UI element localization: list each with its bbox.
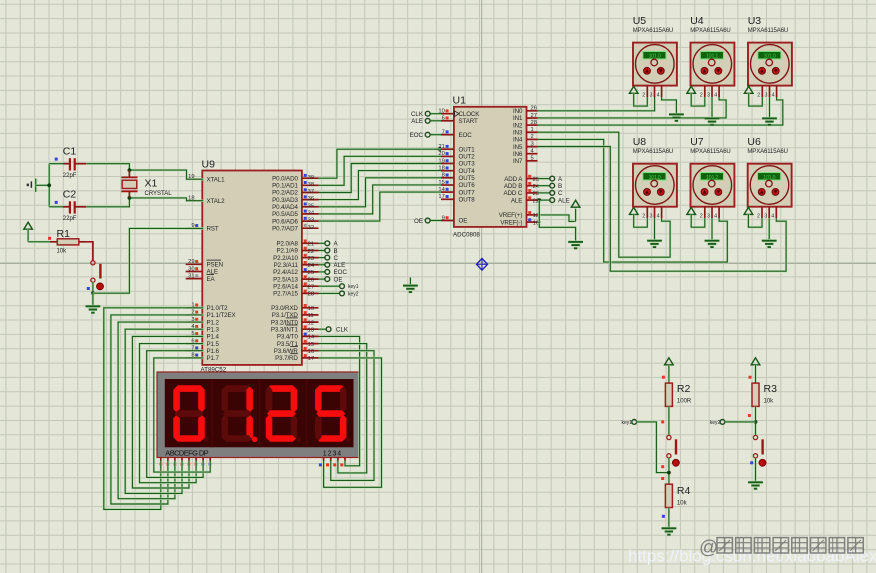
svg-text:5: 5: [531, 156, 534, 162]
svg-text:START: START: [459, 118, 479, 125]
svg-text:IN3: IN3: [513, 129, 523, 136]
svg-text:6: 6: [442, 116, 445, 122]
svg-text:17: 17: [308, 356, 314, 362]
svg-text:10k: 10k: [677, 500, 688, 506]
svg-text:OUT3: OUT3: [459, 161, 476, 168]
svg-text:8: 8: [442, 173, 445, 179]
svg-text:key2: key2: [348, 291, 359, 297]
svg-text:IN4: IN4: [513, 137, 523, 144]
svg-text:36: 36: [308, 196, 314, 202]
svg-text:P1.2: P1.2: [207, 319, 220, 326]
svg-text:P3.7/RD: P3.7/RD: [275, 355, 298, 362]
svg-text:4: 4: [657, 93, 660, 99]
svg-text:27: 27: [531, 113, 537, 119]
svg-text:R3: R3: [764, 383, 778, 395]
svg-text:28: 28: [531, 120, 537, 126]
svg-text:C2: C2: [63, 188, 77, 200]
svg-text:2: 2: [642, 214, 645, 220]
svg-text:IN6: IN6: [513, 151, 523, 158]
svg-text:U7: U7: [690, 136, 704, 148]
svg-text:VREF(-): VREF(-): [500, 219, 522, 226]
svg-text:R4: R4: [677, 485, 691, 497]
svg-text:OUT2: OUT2: [459, 154, 476, 161]
svg-text:MPXA6115A6U: MPXA6115A6U: [633, 28, 673, 34]
svg-text:CLK: CLK: [336, 327, 349, 334]
svg-text:OE: OE: [414, 218, 423, 225]
svg-text:15: 15: [308, 342, 314, 348]
svg-text:2: 2: [757, 93, 760, 99]
svg-text:3: 3: [707, 214, 710, 220]
svg-text:P1.3: P1.3: [207, 326, 220, 333]
svg-text:ADD B: ADD B: [504, 183, 522, 190]
svg-text:22pF: 22pF: [63, 216, 77, 222]
svg-text:P0.7/AD7: P0.7/AD7: [272, 225, 298, 232]
svg-text:P0.3/AD3: P0.3/AD3: [272, 197, 298, 204]
svg-text:25: 25: [308, 270, 314, 276]
svg-text:4: 4: [714, 93, 717, 99]
svg-text:P2.6/A14: P2.6/A14: [273, 283, 298, 290]
svg-text:B: B: [334, 248, 338, 255]
svg-text:32: 32: [308, 225, 314, 231]
svg-text:22pF: 22pF: [63, 173, 77, 179]
svg-text:21: 21: [308, 242, 314, 248]
svg-text:12: 12: [308, 320, 314, 326]
svg-text:P0.2/AD2: P0.2/AD2: [272, 190, 298, 197]
svg-text:P2.7/A15: P2.7/A15: [273, 291, 298, 298]
svg-text:U1: U1: [453, 95, 467, 107]
svg-text:3: 3: [650, 93, 653, 99]
svg-text:OUT8: OUT8: [459, 197, 476, 204]
svg-text:U8: U8: [633, 136, 647, 148]
svg-text:U5: U5: [633, 15, 647, 27]
svg-text:17: 17: [438, 194, 444, 200]
svg-text:OUT1: OUT1: [459, 146, 476, 153]
svg-text:U9: U9: [202, 159, 216, 171]
svg-text:11: 11: [308, 313, 314, 319]
svg-text:IN2: IN2: [513, 122, 523, 129]
svg-text:4: 4: [772, 93, 775, 99]
svg-text:CRYSTAL: CRYSTAL: [145, 191, 173, 197]
svg-text:3: 3: [707, 93, 710, 99]
svg-text:2: 2: [700, 93, 703, 99]
svg-text:ADD A: ADD A: [504, 176, 523, 183]
svg-text:P2.5/A13: P2.5/A13: [273, 276, 298, 283]
svg-text:P2.2/A10: P2.2/A10: [273, 255, 298, 262]
svg-text:P1.5: P1.5: [207, 341, 220, 348]
svg-text:ALE: ALE: [558, 197, 570, 204]
svg-text:OUT4: OUT4: [459, 168, 476, 175]
svg-text:C: C: [558, 190, 563, 197]
svg-text:ADD C: ADD C: [504, 190, 523, 197]
svg-text:2: 2: [531, 134, 534, 140]
svg-text:https://blog.csdn.net/xiaobabA: https://blog.csdn.net/xiaobabAlex: [628, 547, 876, 566]
svg-text:22: 22: [308, 249, 314, 255]
svg-text:U4: U4: [690, 15, 704, 27]
svg-text:ALE: ALE: [511, 197, 522, 204]
svg-text:4: 4: [714, 214, 717, 220]
svg-text:16: 16: [308, 349, 314, 355]
svg-text:P0.1/AD1: P0.1/AD1: [272, 183, 298, 190]
svg-text:2: 2: [700, 214, 703, 220]
svg-text:27: 27: [308, 285, 314, 291]
svg-text:P2.4/A12: P2.4/A12: [273, 269, 298, 276]
svg-text:EOC: EOC: [459, 132, 473, 139]
svg-text:3: 3: [531, 141, 534, 147]
svg-text:RST: RST: [207, 226, 219, 233]
svg-text:3: 3: [765, 93, 768, 99]
svg-text:P1.4: P1.4: [207, 334, 220, 341]
svg-text:C: C: [334, 255, 339, 262]
svg-text:IN5: IN5: [513, 144, 523, 151]
svg-text:OE: OE: [334, 276, 343, 283]
svg-text:MPXA6115A6U: MPXA6115A6U: [690, 28, 730, 34]
svg-text:P2.0/A8: P2.0/A8: [276, 241, 298, 248]
svg-text:C1: C1: [63, 145, 77, 157]
svg-text:P0.0/AD0: P0.0/AD0: [272, 175, 298, 182]
svg-text:37: 37: [308, 189, 314, 195]
svg-text:23: 23: [308, 256, 314, 262]
svg-text:10k: 10k: [57, 248, 68, 254]
svg-text:P3.3/INT1: P3.3/INT1: [271, 326, 299, 333]
svg-text:4: 4: [771, 214, 774, 220]
svg-text:U3: U3: [748, 15, 762, 27]
svg-text:VREF(+): VREF(+): [499, 212, 523, 219]
svg-text:EA: EA: [207, 276, 216, 283]
svg-text:34: 34: [308, 211, 315, 217]
svg-text:P0.5/AD5: P0.5/AD5: [272, 211, 298, 218]
svg-text:28: 28: [308, 292, 314, 298]
svg-text:PSEN: PSEN: [207, 262, 223, 269]
svg-text:MPXA6115A6U: MPXA6115A6U: [690, 149, 730, 155]
svg-text:EOC: EOC: [334, 269, 348, 276]
svg-text:P0.6/AD6: P0.6/AD6: [272, 218, 298, 225]
svg-text:P2.3/A11: P2.3/A11: [274, 262, 299, 269]
svg-text:26: 26: [308, 277, 314, 283]
svg-text:38: 38: [308, 182, 314, 188]
svg-text:ABCDEFG DP: ABCDEFG DP: [165, 449, 208, 458]
svg-text:OUT7: OUT7: [459, 189, 476, 196]
svg-text:3: 3: [764, 214, 767, 220]
svg-text:R1: R1: [57, 228, 71, 240]
svg-text:IN1: IN1: [513, 115, 523, 122]
svg-text:B: B: [558, 183, 562, 190]
svg-text:P2.1/A9: P2.1/A9: [276, 248, 298, 255]
svg-text:IN0: IN0: [513, 108, 523, 115]
svg-text:MPXA6115A6U: MPXA6115A6U: [748, 28, 788, 34]
svg-text:2: 2: [757, 214, 760, 220]
svg-text:24: 24: [308, 263, 315, 269]
svg-text:key2: key2: [710, 420, 721, 426]
svg-text:@: @: [699, 538, 718, 559]
svg-text:P1.0/T2: P1.0/T2: [207, 305, 229, 312]
svg-text:U6: U6: [747, 136, 761, 148]
svg-text:3: 3: [650, 214, 653, 220]
svg-text:ALE: ALE: [334, 262, 346, 269]
svg-text:OUT5: OUT5: [459, 175, 476, 182]
svg-text:2: 2: [642, 93, 645, 99]
svg-text:R2: R2: [677, 383, 691, 395]
svg-text:39: 39: [308, 175, 314, 181]
svg-text:33: 33: [308, 218, 314, 224]
svg-text:CLK: CLK: [411, 111, 424, 118]
svg-text:29: 29: [188, 259, 194, 265]
svg-text:7: 7: [442, 130, 445, 136]
svg-text:XTAL1: XTAL1: [207, 176, 226, 183]
svg-text:ADC0808: ADC0808: [453, 232, 480, 239]
svg-text:1 2 3 4: 1 2 3 4: [323, 451, 342, 458]
svg-text:10: 10: [308, 306, 314, 312]
svg-text:IN7: IN7: [513, 158, 523, 165]
svg-text:P0.4/AD4: P0.4/AD4: [272, 204, 298, 211]
svg-text:14: 14: [308, 335, 315, 341]
svg-text:P1.6: P1.6: [207, 348, 220, 355]
svg-text:26: 26: [531, 106, 537, 112]
svg-text:P3.4/T0: P3.4/T0: [277, 334, 299, 341]
svg-text:P1.1/T2EX: P1.1/T2EX: [207, 312, 236, 319]
svg-text:key1: key1: [348, 284, 359, 290]
svg-text:30: 30: [188, 266, 194, 272]
svg-text:35: 35: [308, 203, 314, 209]
svg-text:P1.7: P1.7: [207, 355, 220, 362]
svg-text:MPXA6115A6U: MPXA6115A6U: [747, 149, 787, 155]
svg-text:OUT6: OUT6: [459, 182, 476, 189]
svg-text:MPXA6115A6U: MPXA6115A6U: [633, 149, 673, 155]
svg-text:P3.0/RXD: P3.0/RXD: [271, 305, 298, 312]
svg-text:4: 4: [657, 214, 660, 220]
svg-text:1: 1: [531, 127, 534, 133]
svg-text:OE: OE: [459, 218, 468, 225]
svg-text:key1: key1: [621, 420, 632, 426]
svg-text:10k: 10k: [764, 398, 775, 404]
svg-text:13: 13: [308, 328, 314, 334]
svg-text:100R: 100R: [677, 398, 692, 404]
svg-text:ALE: ALE: [411, 118, 423, 125]
svg-text:9: 9: [442, 215, 445, 221]
svg-text:EOC: EOC: [410, 132, 424, 139]
svg-text:AT89C52: AT89C52: [201, 366, 227, 373]
svg-text:31: 31: [188, 273, 194, 279]
svg-text:X1: X1: [145, 178, 158, 190]
svg-text:CLOCK: CLOCK: [459, 111, 481, 118]
svg-text:XTAL2: XTAL2: [207, 198, 226, 205]
